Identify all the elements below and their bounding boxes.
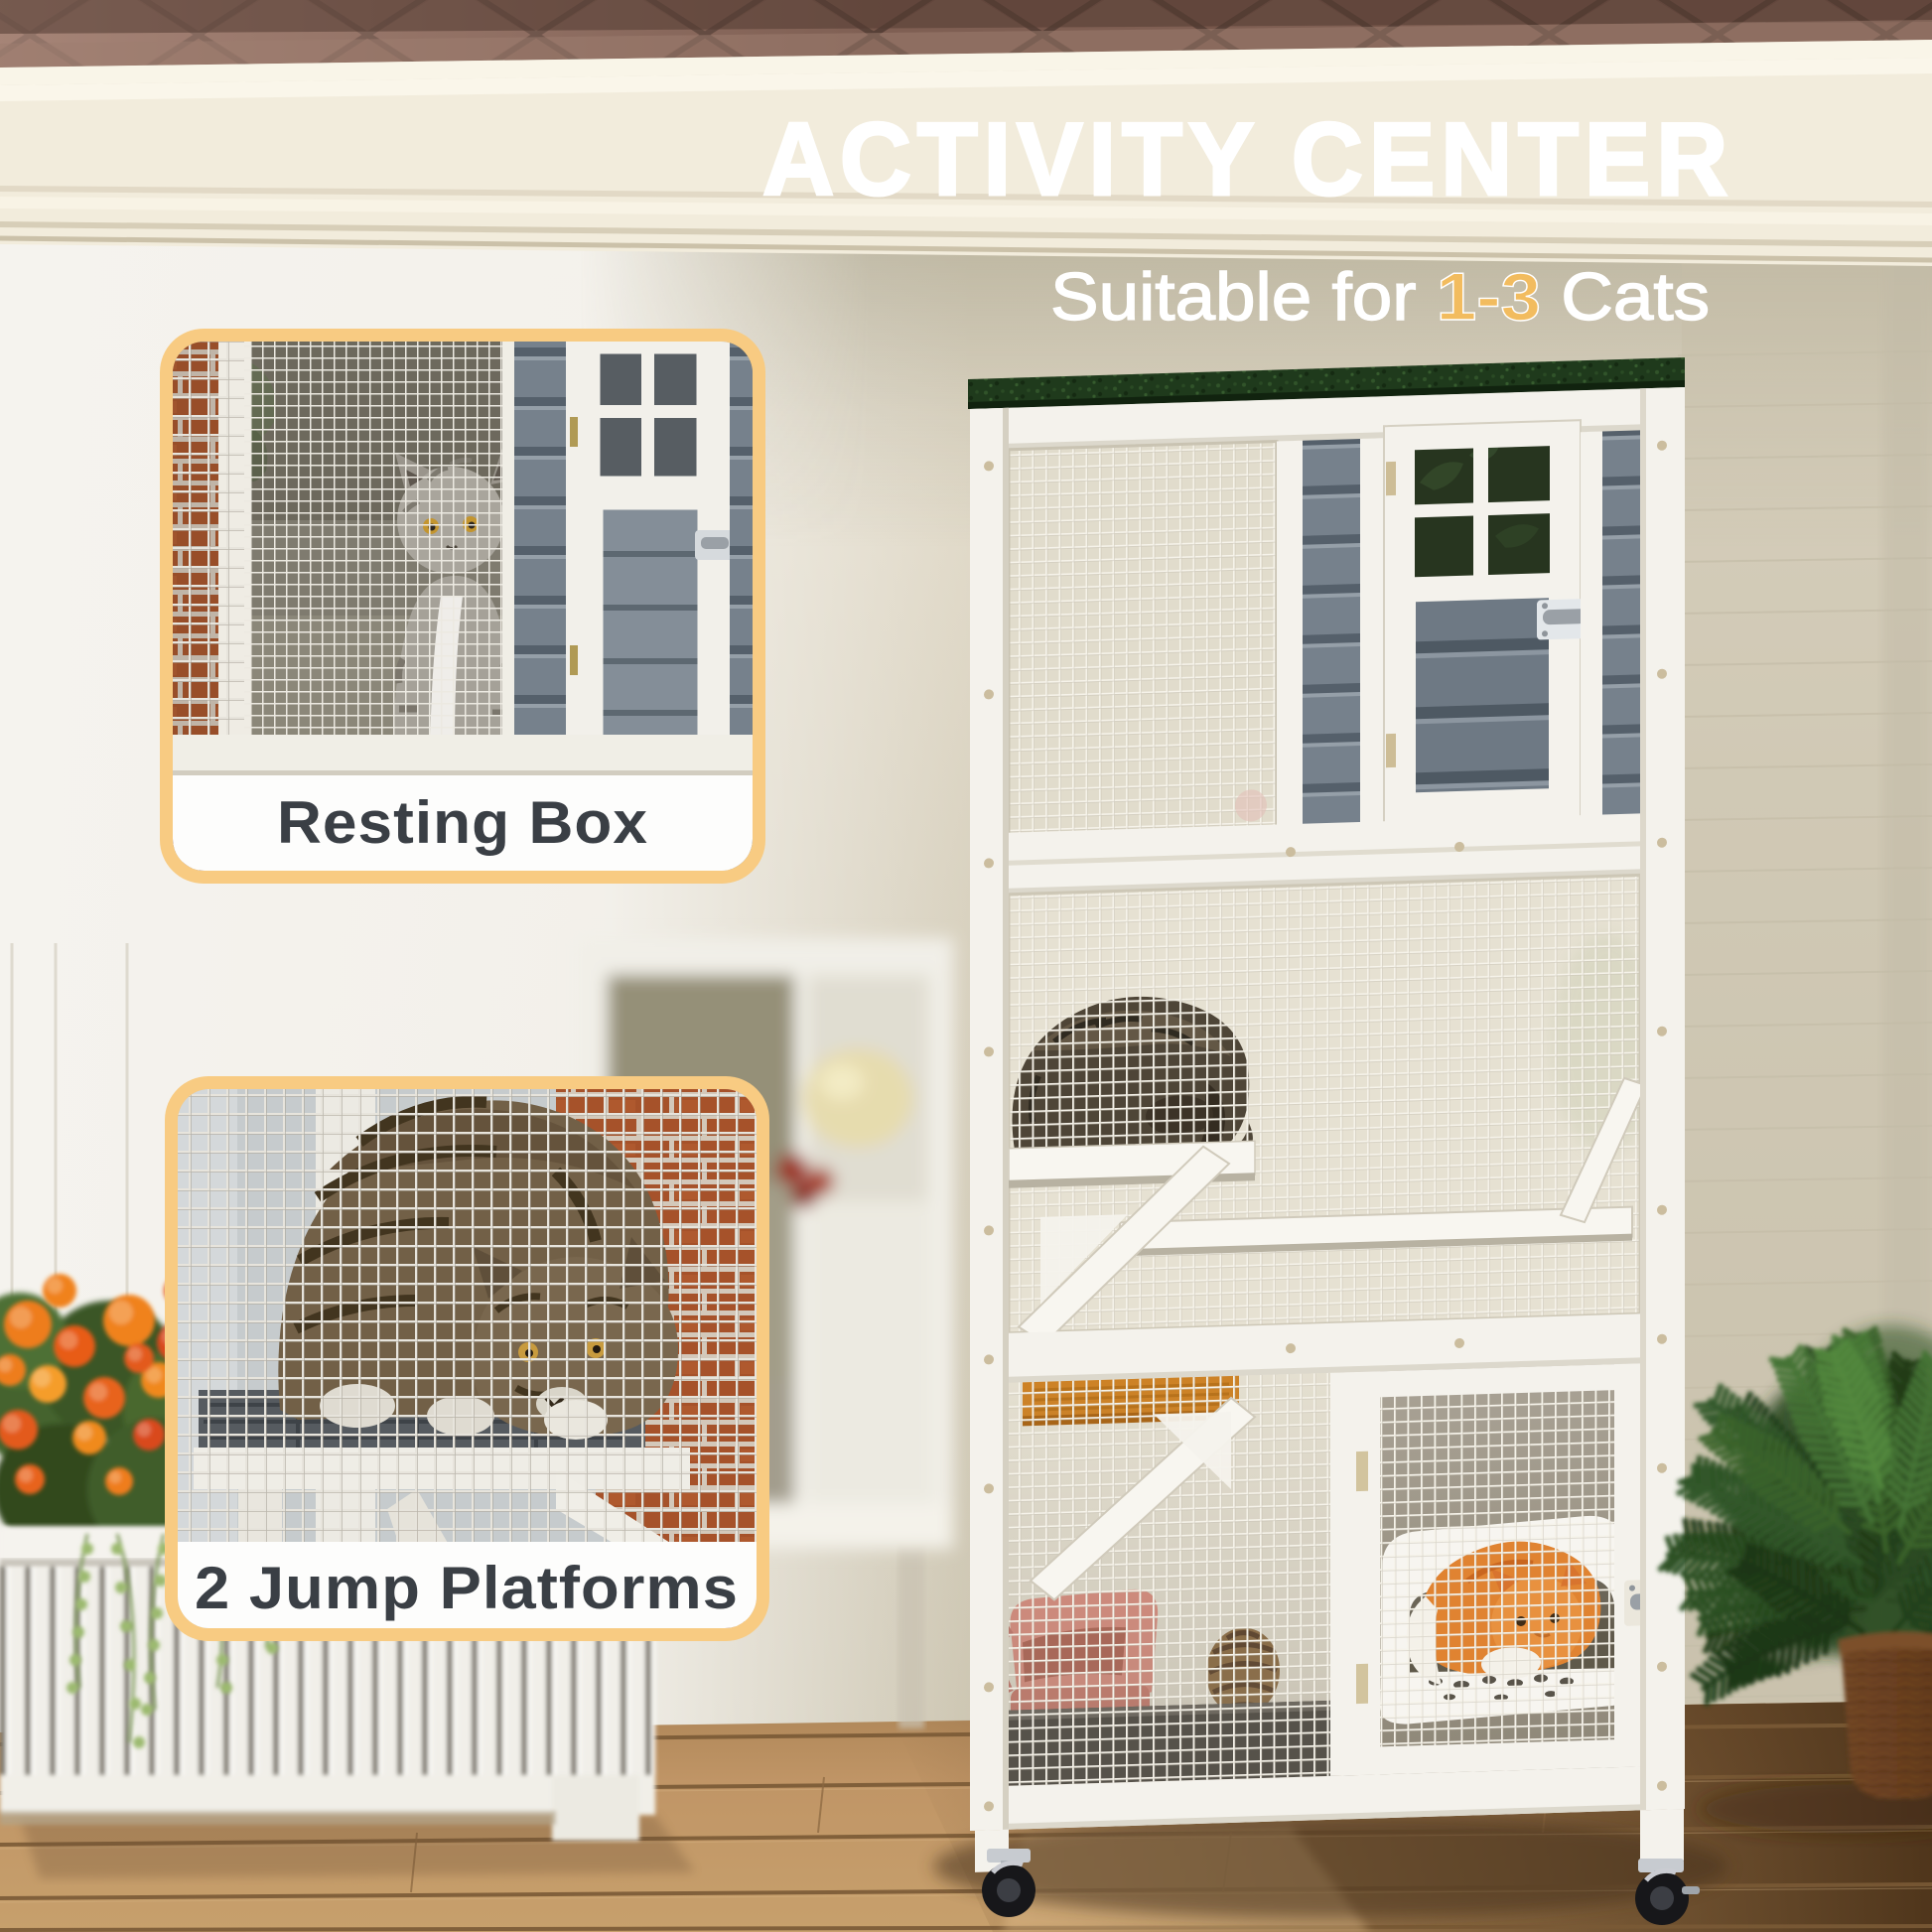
svg-text:ACTIVITY CENTER: ACTIVITY CENTER [762, 102, 1733, 217]
svg-text:Suitable for 1-3 Cats: Suitable for 1-3 Cats [1050, 259, 1710, 335]
svg-text:Resting Box: Resting Box [277, 789, 648, 856]
svg-text:2 Jump Platforms: 2 Jump Platforms [195, 1555, 739, 1621]
